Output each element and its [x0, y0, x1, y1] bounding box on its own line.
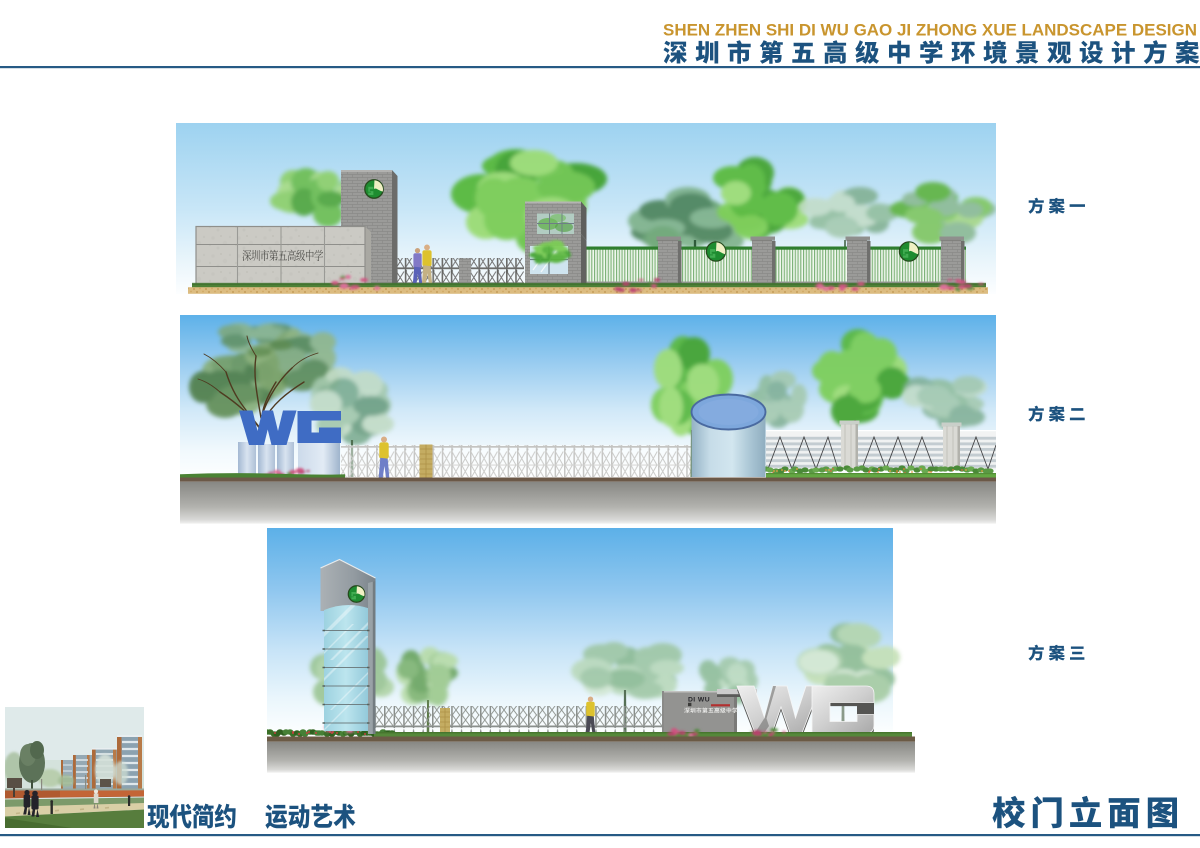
svg-text:SHEN ZHEN SHI DI WU GAO JI ZHO: SHEN ZHEN SHI DI WU GAO JI ZHONG XUE LAN… — [663, 22, 1197, 40]
svg-text:DI WU: DI WU — [688, 697, 710, 704]
